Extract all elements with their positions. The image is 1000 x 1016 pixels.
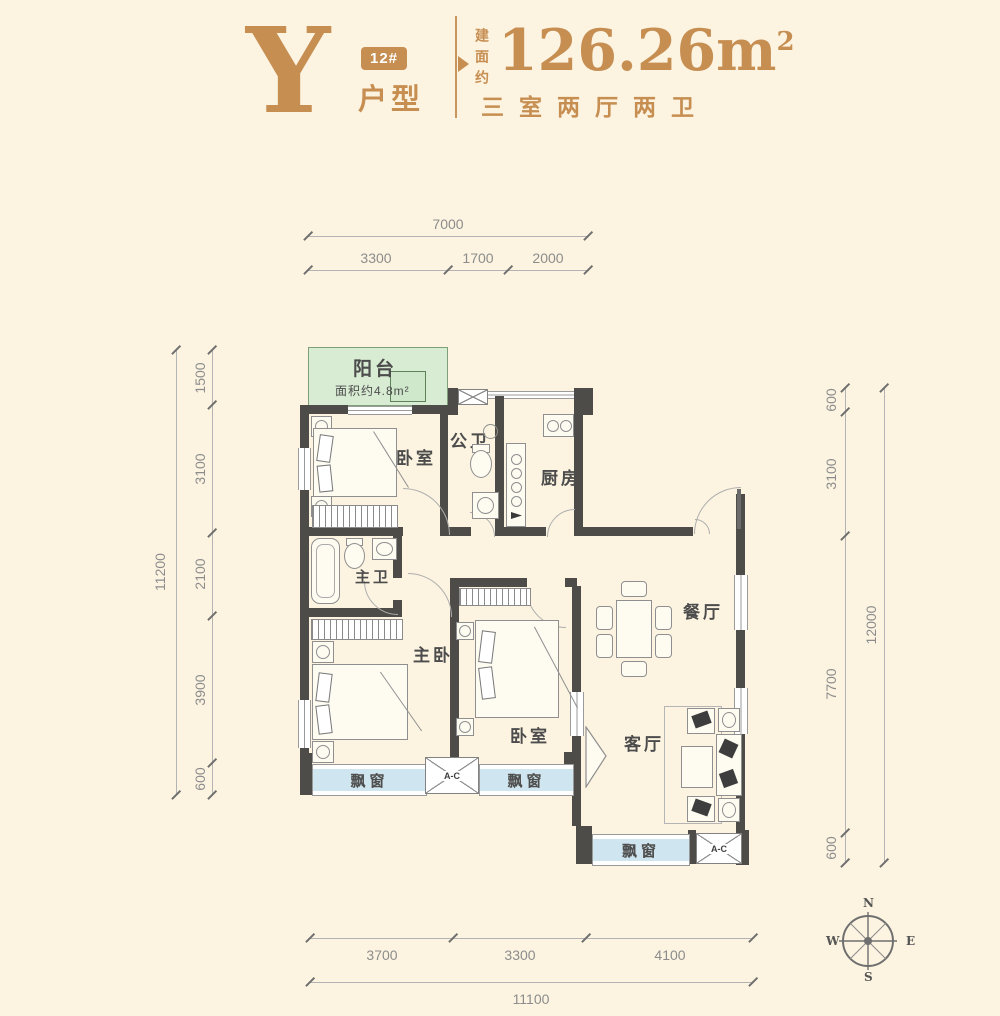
washer-drum-icon bbox=[477, 497, 494, 514]
sofa-pillow bbox=[719, 739, 739, 759]
header-divider bbox=[455, 16, 457, 118]
window bbox=[298, 448, 311, 490]
dim-line bbox=[845, 388, 846, 863]
bathtub bbox=[311, 538, 340, 604]
wall bbox=[447, 527, 471, 536]
dim-label: 12000 bbox=[863, 600, 879, 650]
chair bbox=[621, 581, 647, 597]
ac-unit: A-C bbox=[696, 833, 742, 864]
room-label-masterbedroom: 主卧 bbox=[413, 641, 453, 666]
bay-window: 飘窗 bbox=[593, 839, 689, 861]
lamp-icon bbox=[722, 712, 736, 728]
window bbox=[298, 700, 311, 748]
flue-shaft bbox=[458, 389, 488, 405]
side-table bbox=[718, 798, 740, 822]
dim-label: 600 bbox=[192, 754, 208, 804]
compass-e: E bbox=[906, 934, 915, 948]
dim-line bbox=[884, 388, 885, 863]
chair bbox=[596, 606, 613, 630]
pillow bbox=[315, 704, 332, 734]
lamp-icon bbox=[459, 721, 471, 733]
chair bbox=[655, 606, 672, 630]
chair bbox=[655, 634, 672, 658]
chair bbox=[596, 634, 613, 658]
wardrobe bbox=[459, 588, 531, 606]
side-table bbox=[718, 708, 740, 732]
sink-basin bbox=[560, 420, 572, 432]
pillow bbox=[478, 630, 496, 663]
lamp-icon bbox=[459, 625, 471, 637]
kitchen-sink bbox=[543, 414, 574, 437]
wall-pillar-sw bbox=[300, 753, 312, 795]
dim-label: 3300 bbox=[495, 947, 545, 963]
window bbox=[734, 575, 748, 630]
room-label-living: 客厅 bbox=[624, 730, 664, 755]
dim-label: 600 bbox=[823, 375, 839, 425]
room-label-kitchen: 厨房 bbox=[541, 464, 581, 489]
washer bbox=[472, 492, 499, 519]
nightstand bbox=[312, 641, 334, 663]
dining-table bbox=[616, 600, 652, 658]
dim-label: 1500 bbox=[192, 353, 208, 403]
bed bbox=[475, 620, 559, 718]
sofa-pillow bbox=[691, 798, 711, 816]
nightstand bbox=[312, 741, 334, 763]
vanity-sink bbox=[372, 538, 397, 560]
room-label-masterbath: 主卫 bbox=[355, 566, 391, 587]
lamp-icon bbox=[316, 645, 330, 659]
coffee-table bbox=[681, 746, 713, 788]
type-letter: Y bbox=[246, 12, 330, 130]
dim-line bbox=[176, 350, 177, 795]
balcony-slider-window bbox=[348, 406, 412, 415]
sofa-pillow bbox=[719, 769, 738, 788]
dim-label: 7000 bbox=[423, 216, 473, 232]
dim-label: 600 bbox=[823, 823, 839, 873]
area-sup: 2 bbox=[776, 27, 794, 57]
wall-north bbox=[300, 405, 348, 414]
compass-icon bbox=[832, 905, 904, 977]
nightstand bbox=[456, 718, 474, 736]
wall-entry-north bbox=[574, 527, 693, 536]
pillow bbox=[317, 464, 334, 492]
chair bbox=[621, 661, 647, 677]
room-label-bedroom: 卧室 bbox=[396, 444, 436, 469]
area-number: 126.26m bbox=[498, 17, 776, 84]
wall-bedroom2-west bbox=[450, 578, 459, 764]
door-arc-publicbath bbox=[445, 512, 495, 562]
bay-window-label: 飘窗 bbox=[507, 770, 545, 791]
compass-n: N bbox=[863, 896, 874, 910]
wardrobe bbox=[312, 505, 398, 528]
dim-label: 1700 bbox=[453, 250, 503, 266]
dim-line bbox=[310, 938, 753, 939]
blanket-fold bbox=[380, 672, 422, 732]
dim-label: 11100 bbox=[506, 991, 556, 1007]
counter-mark bbox=[511, 512, 522, 519]
ac-label: A-C bbox=[442, 771, 462, 781]
ac-label-wrap: A-C bbox=[697, 834, 741, 863]
room-label-balcony: 阳台 bbox=[353, 354, 397, 381]
sink-bowl bbox=[376, 542, 393, 556]
kitchen-counter bbox=[506, 443, 526, 527]
dim-label: 3100 bbox=[192, 444, 208, 494]
type-label: 户型 bbox=[358, 76, 424, 118]
sofa-seat bbox=[687, 796, 715, 822]
burner bbox=[511, 482, 522, 493]
washbasin bbox=[483, 424, 498, 439]
pillow bbox=[316, 434, 334, 463]
dim-line bbox=[308, 236, 589, 237]
dim-line bbox=[212, 350, 213, 795]
sofa-seat bbox=[687, 708, 715, 734]
bay-window-label: 飘窗 bbox=[350, 770, 388, 791]
burner bbox=[511, 496, 522, 507]
dim-label: 3100 bbox=[823, 449, 839, 499]
bay-window-frame: 飘窗 bbox=[312, 764, 427, 796]
dim-label: 2100 bbox=[192, 549, 208, 599]
wall-pillar bbox=[576, 826, 592, 864]
lamp-icon bbox=[722, 802, 736, 818]
dim-label: 2000 bbox=[523, 250, 573, 266]
toilet bbox=[344, 543, 365, 569]
area-value: 126.26m2 bbox=[498, 22, 795, 79]
dim-label: 11200 bbox=[152, 547, 168, 597]
dim-label: 3900 bbox=[192, 665, 208, 715]
pillow bbox=[315, 672, 332, 702]
dim-label: 3700 bbox=[357, 947, 407, 963]
burner bbox=[511, 468, 522, 479]
nightstand bbox=[456, 622, 474, 640]
sink-basin bbox=[547, 420, 559, 432]
bay-window: 飘窗 bbox=[313, 769, 426, 791]
room-label-dining: 餐厅 bbox=[683, 598, 723, 623]
entry-door-leaf bbox=[737, 489, 741, 529]
dim-label: 3300 bbox=[351, 250, 401, 266]
area-prefix: 建面约 bbox=[472, 28, 492, 91]
wall bbox=[495, 527, 546, 536]
compass-s: S bbox=[864, 970, 873, 984]
pillow bbox=[478, 666, 496, 699]
wall bbox=[308, 527, 403, 536]
bathtub-inner bbox=[316, 544, 335, 598]
balcony-area-label: 面积约4.8m² bbox=[335, 382, 410, 399]
floorplan-page: { "header": { "type_letter": "Y", "build… bbox=[0, 0, 1000, 1016]
wardrobe bbox=[311, 619, 403, 640]
bay-window-frame: 飘窗 bbox=[479, 764, 574, 796]
compass-w: W bbox=[826, 934, 839, 948]
bay-window: 飘窗 bbox=[480, 769, 573, 791]
bed bbox=[313, 428, 397, 497]
ac-label-wrap: A-C bbox=[426, 758, 478, 793]
lamp-icon bbox=[316, 745, 330, 759]
door-arc-bedroom2 bbox=[526, 548, 606, 628]
arrow-icon bbox=[458, 56, 469, 72]
wall-bedroom2-north bbox=[459, 578, 527, 587]
burner bbox=[511, 454, 522, 465]
dim-line bbox=[310, 982, 753, 983]
tv-stand bbox=[585, 726, 609, 788]
bed bbox=[312, 664, 408, 740]
sofa bbox=[716, 734, 742, 796]
toilet bbox=[470, 450, 492, 478]
bay-window-frame: 飘窗 bbox=[592, 834, 690, 866]
layout-text: 三室两厅两卫 bbox=[481, 88, 709, 122]
dim-label: 7700 bbox=[823, 659, 839, 709]
bay-window-label: 飘窗 bbox=[622, 840, 660, 861]
room-label-bedroom2: 卧室 bbox=[510, 722, 550, 747]
dim-label: 4100 bbox=[645, 947, 695, 963]
wall-pillar bbox=[448, 388, 458, 415]
ac-unit: A-C bbox=[425, 757, 479, 794]
sofa-pillow bbox=[691, 710, 711, 728]
building-badge: 12# bbox=[361, 47, 407, 70]
ac-label: A-C bbox=[709, 844, 729, 854]
